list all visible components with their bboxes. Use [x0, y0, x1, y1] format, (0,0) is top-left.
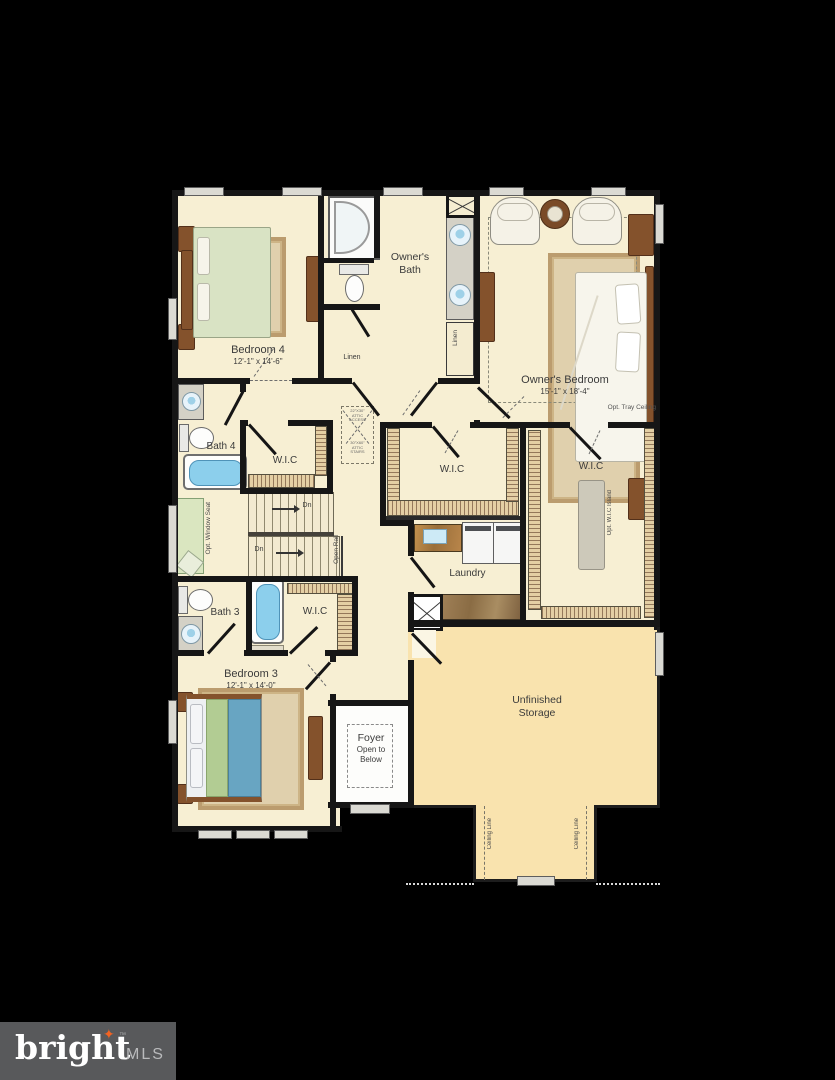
- wall: [408, 620, 660, 627]
- star-icon: ✦: [103, 1026, 115, 1043]
- sink-icon: [449, 224, 471, 246]
- wall: [324, 378, 352, 384]
- wall: [594, 805, 597, 882]
- dresser: [478, 272, 495, 342]
- blanket-green: [206, 699, 228, 797]
- ceiling-line-note-left: Ceiling Line: [487, 818, 493, 849]
- wall: [327, 420, 333, 494]
- roof-dotted-line: [596, 883, 660, 885]
- linen-label: Linen: [330, 354, 374, 362]
- pillow: [190, 704, 203, 744]
- wall: [608, 422, 660, 428]
- window: [168, 700, 177, 744]
- stair-down-arrow: [272, 508, 294, 510]
- stair-rail: [341, 536, 343, 578]
- window-seat-note: Opt. Window Seat: [205, 502, 212, 554]
- window: [236, 830, 270, 839]
- armchair: [490, 197, 540, 245]
- stairs-divider: [248, 532, 334, 536]
- wall: [408, 520, 414, 556]
- wic-island: [578, 480, 605, 570]
- attic-stairs-note: 30"X60" ATTIC STAIRS: [341, 441, 374, 455]
- room-label-owners-bath-line1: Owner's: [370, 251, 450, 263]
- room-dims-bedroom4: 12'-1" x 14'-6": [193, 357, 323, 366]
- wall: [172, 378, 250, 384]
- room-label-storage-line1: Unfinished: [457, 694, 617, 706]
- stairs-lower-run: [248, 536, 340, 578]
- window: [274, 830, 308, 839]
- closet-rod: [506, 428, 519, 502]
- armchair: [572, 197, 622, 245]
- laundry-sink: [423, 529, 447, 544]
- stairs-upper-run: [248, 492, 334, 534]
- nightstand: [628, 214, 654, 256]
- closet-rod: [541, 606, 641, 619]
- room-dims-bedroom3: 12'-1" x 14'-0": [186, 681, 316, 690]
- toilet-icon: [178, 586, 188, 614]
- closet-rod: [248, 474, 315, 488]
- toilet-icon: [339, 264, 369, 275]
- sink-icon: [182, 392, 201, 411]
- wall: [438, 378, 474, 384]
- wall: [172, 650, 204, 656]
- room-label-wic-bedroom3: W.I.C: [282, 606, 348, 618]
- room-label-owners-bedroom: Owner's Bedroom: [490, 374, 640, 387]
- window: [168, 298, 177, 340]
- wall: [292, 378, 324, 384]
- entry-step: [517, 876, 555, 886]
- room-label-owners-bath-line2: Bath: [370, 264, 450, 276]
- closet-rod: [387, 428, 400, 502]
- door-swing: [250, 380, 292, 381]
- wall: [386, 516, 520, 520]
- logo-tm: ™: [119, 1032, 126, 1039]
- floor-plan-page: Bedroom 4 12'-1" x 14'-6" Owner's Bath O…: [0, 0, 835, 1080]
- room-label-wic-middle: W.I.C: [417, 464, 487, 476]
- closet-rod: [315, 426, 327, 476]
- stair-dn-upper: Dn: [299, 502, 315, 510]
- room-label-bath4: Bath 4: [186, 441, 256, 453]
- sink-icon: [449, 284, 471, 306]
- entry-step: [350, 804, 390, 814]
- closet-rod: [528, 430, 541, 610]
- wall: [380, 422, 432, 428]
- wall: [324, 258, 374, 263]
- bed-headboard: [181, 250, 193, 330]
- window: [655, 204, 664, 244]
- tub-water: [189, 460, 243, 486]
- closet-rod: [337, 594, 353, 651]
- window: [383, 187, 423, 196]
- wall: [520, 422, 526, 626]
- room-label-bedroom3: Bedroom 3: [186, 668, 316, 681]
- pillow: [197, 237, 210, 275]
- brightmls-logo: bright ✦ ™ MLS: [0, 1022, 176, 1080]
- window: [489, 187, 524, 196]
- wall: [172, 576, 358, 582]
- ceiling-line-note-right: Ceiling Line: [574, 818, 580, 849]
- wall: [328, 700, 412, 706]
- window: [282, 187, 322, 196]
- table-plate: [547, 206, 563, 222]
- wall: [330, 650, 336, 662]
- window: [591, 187, 626, 196]
- window: [198, 830, 232, 839]
- room-label-storage-line2: Storage: [457, 707, 617, 719]
- room-label-wic-hall: W.I.C: [250, 455, 320, 467]
- open-rail-note: Open Rail: [333, 535, 340, 564]
- stair-down-arrow: [276, 552, 298, 554]
- wall: [240, 488, 333, 494]
- room-label-foyer: Foyer: [336, 732, 406, 744]
- sink-icon: [181, 624, 201, 644]
- washer-icon: [462, 522, 494, 564]
- room-label-bath3: Bath 3: [190, 607, 260, 619]
- room-label-laundry: Laundry: [420, 568, 515, 580]
- dresser: [308, 716, 323, 780]
- attic-access-note: 22"X30" ATTIC ACCESS: [341, 409, 374, 423]
- wall: [474, 190, 480, 384]
- window: [184, 187, 224, 196]
- closet-rod: [387, 500, 519, 516]
- roof-dotted-line: [406, 883, 474, 885]
- ceiling-line: [586, 806, 587, 880]
- foyer-note-line1: Open to: [336, 745, 406, 754]
- wic-island-note: Opt. W.I.C Island: [607, 490, 613, 535]
- wall: [470, 422, 480, 428]
- wall: [408, 805, 476, 808]
- pillow: [197, 283, 210, 321]
- wall: [240, 420, 246, 494]
- ceiling-line: [484, 806, 485, 880]
- window: [655, 632, 664, 676]
- foyer-note-line2: Below: [336, 755, 406, 764]
- logo-suffix-text: MLS: [126, 1046, 165, 1064]
- stair-dn-lower: Dn: [251, 546, 267, 554]
- window: [168, 505, 177, 573]
- pillow: [190, 748, 203, 788]
- closet-rod: [287, 583, 353, 594]
- room-dims-owners-bedroom: 15'-1" x 18'-4": [490, 387, 640, 396]
- wall: [374, 196, 380, 258]
- wall: [244, 650, 288, 656]
- folding-counter: [436, 594, 522, 620]
- wall: [352, 576, 358, 656]
- tray-ceiling-note: Opt. Tray Ceiling: [560, 404, 656, 411]
- wall: [380, 422, 386, 526]
- linen-label-vertical: Linen: [452, 330, 459, 346]
- room-label-bedroom4: Bedroom 4: [193, 344, 323, 357]
- wall: [408, 660, 414, 808]
- toilet-bowl: [345, 275, 364, 302]
- wall: [594, 805, 660, 808]
- room-label-wic-owner: W.I.C: [556, 461, 626, 473]
- wall: [473, 805, 476, 882]
- blanket-teal: [228, 699, 261, 797]
- linen-right-closet: [446, 322, 474, 376]
